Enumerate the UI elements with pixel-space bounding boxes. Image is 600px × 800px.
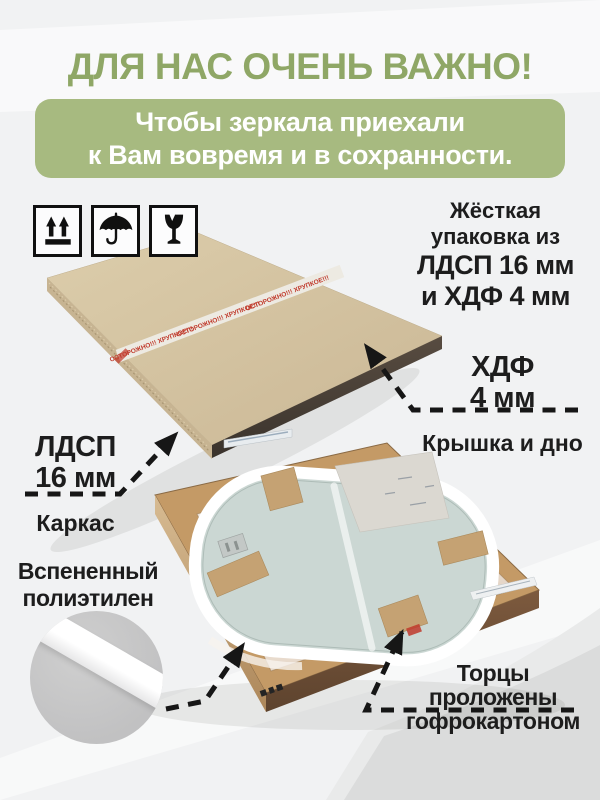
promo-banner: Чтобы зеркала приехали к Вам вовремя и в…	[35, 99, 565, 178]
this-side-up-icon	[33, 205, 82, 257]
edges-line3: гофрокартоном	[393, 709, 593, 733]
ldsp-caption: Каркас	[18, 510, 133, 536]
annotation-edges: Торцы проложены гофрокартоном	[393, 661, 593, 733]
hdf-caption: Крышка и дно	[410, 430, 595, 456]
edges-line2: проложены	[393, 685, 593, 709]
hdf-title1: ХДФ	[410, 352, 595, 383]
foam-zoom-callout	[30, 611, 163, 744]
fragile-icon	[149, 205, 198, 257]
rigid-line3: ЛДСП 16 мм	[403, 250, 588, 281]
ldsp-title1: ЛДСП	[18, 432, 133, 463]
hdf-title2: 4 мм	[410, 383, 595, 414]
packaging-infographic: ДЛЯ НАС ОЧЕНЬ ВАЖНО! Чтобы зеркала приех…	[0, 0, 600, 800]
keep-dry-icon	[91, 205, 140, 257]
promo-banner-line1: Чтобы зеркала приехали	[35, 106, 565, 139]
foam-line1: Вспененный	[8, 558, 168, 585]
packaging-icons-row	[33, 205, 198, 257]
rigid-line1: Жёсткая	[403, 198, 588, 224]
annotation-ldsp: ЛДСП 16 мм Каркас	[18, 432, 133, 536]
foam-line2: полиэтилен	[8, 585, 168, 612]
rigid-line2: упаковка из	[403, 224, 588, 250]
promo-banner-line2: к Вам вовремя и в сохранности.	[35, 139, 565, 172]
edges-line1: Торцы	[393, 661, 593, 685]
annotation-hdf: ХДФ 4 мм Крышка и дно	[410, 352, 595, 456]
ldsp-title2: 16 мм	[18, 463, 133, 494]
annotation-rigid-packaging: Жёсткая упаковка из ЛДСП 16 мм и ХДФ 4 м…	[403, 198, 588, 312]
rigid-line4: и ХДФ 4 мм	[403, 281, 588, 312]
page-title: ДЛЯ НАС ОЧЕНЬ ВАЖНО!	[0, 46, 600, 88]
annotation-foam: Вспененный полиэтилен	[8, 558, 168, 612]
